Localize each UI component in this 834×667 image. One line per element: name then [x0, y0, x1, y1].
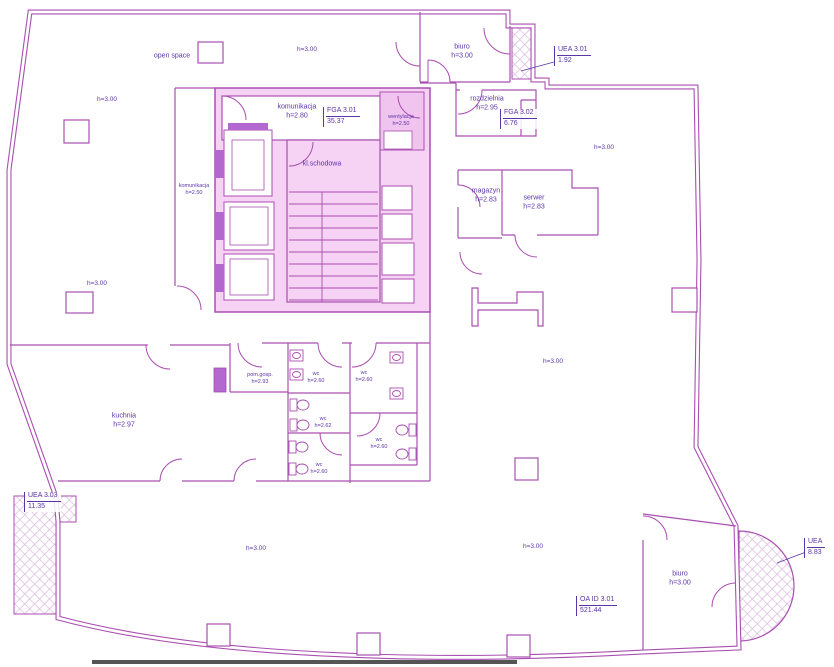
- area-label-fga-3-01: FGA 3.01 35.37: [323, 107, 360, 127]
- room-label-wc3: wc h=2.62: [315, 416, 332, 430]
- height-mark: h=3.00: [523, 543, 543, 551]
- area-label-oa-id-3-01: OA ID 3.01 521.44: [576, 596, 617, 616]
- room-label-magazyn: magazyn h=2.83: [472, 187, 500, 206]
- room-label-open-space: open space: [154, 51, 190, 60]
- room-label-komunikacja-top: komunikacja h=2.80: [278, 103, 317, 122]
- leader-lines: [521, 62, 806, 563]
- room-label-komunikacja-left: komunikacja h=2.50: [179, 183, 210, 197]
- height-mark: h=3.00: [297, 46, 317, 54]
- room-label-pom-gosp: pom.gosp. h=2.93: [247, 372, 273, 386]
- room-label-wc4: wc h=2.60: [311, 462, 328, 476]
- area-label-fga-3-02: FGA 3.02 6.76: [500, 109, 537, 129]
- height-mark: h=3.00: [97, 96, 117, 104]
- height-mark: h=3.00: [543, 358, 563, 366]
- room-label-wc2: wc h=2.60: [356, 370, 373, 384]
- room-label-kl-schodowa: kl.schodowa: [303, 159, 342, 168]
- area-label-uea-bottom-right: UEA 8.83: [804, 538, 825, 558]
- height-mark: h=3.00: [87, 280, 107, 288]
- height-mark: h=3.00: [594, 144, 614, 152]
- room-label-biuro-bottom: biuro h=3.00: [669, 570, 691, 589]
- floorplan: open space h=3.00 h=3.00 h=3.00 h=3.00 h…: [0, 0, 834, 667]
- bottom-edge-bar: [92, 660, 517, 664]
- floorplan-drawing: [0, 0, 834, 667]
- room-label-kuchnia: kuchnia h=2.97: [112, 412, 136, 431]
- room-label-wentylacja: wentylacja h=2.50: [388, 114, 414, 128]
- room-label-wc1: wc h=2.60: [308, 371, 325, 385]
- room-label-serwer: serwer h=2.83: [523, 194, 545, 213]
- room-label-rozdzielnia: rozdzielnia h=2.95: [470, 95, 503, 114]
- height-mark: h=3.00: [246, 545, 266, 553]
- area-label-uea-3-01: UEA 3.01 1.92: [554, 46, 591, 66]
- room-label-biuro-top: biuro h=3.00: [451, 43, 473, 62]
- area-label-uea-3-03: UEA 3.03 11.35: [24, 492, 61, 512]
- room-label-wc5: wc h=2.60: [371, 437, 388, 451]
